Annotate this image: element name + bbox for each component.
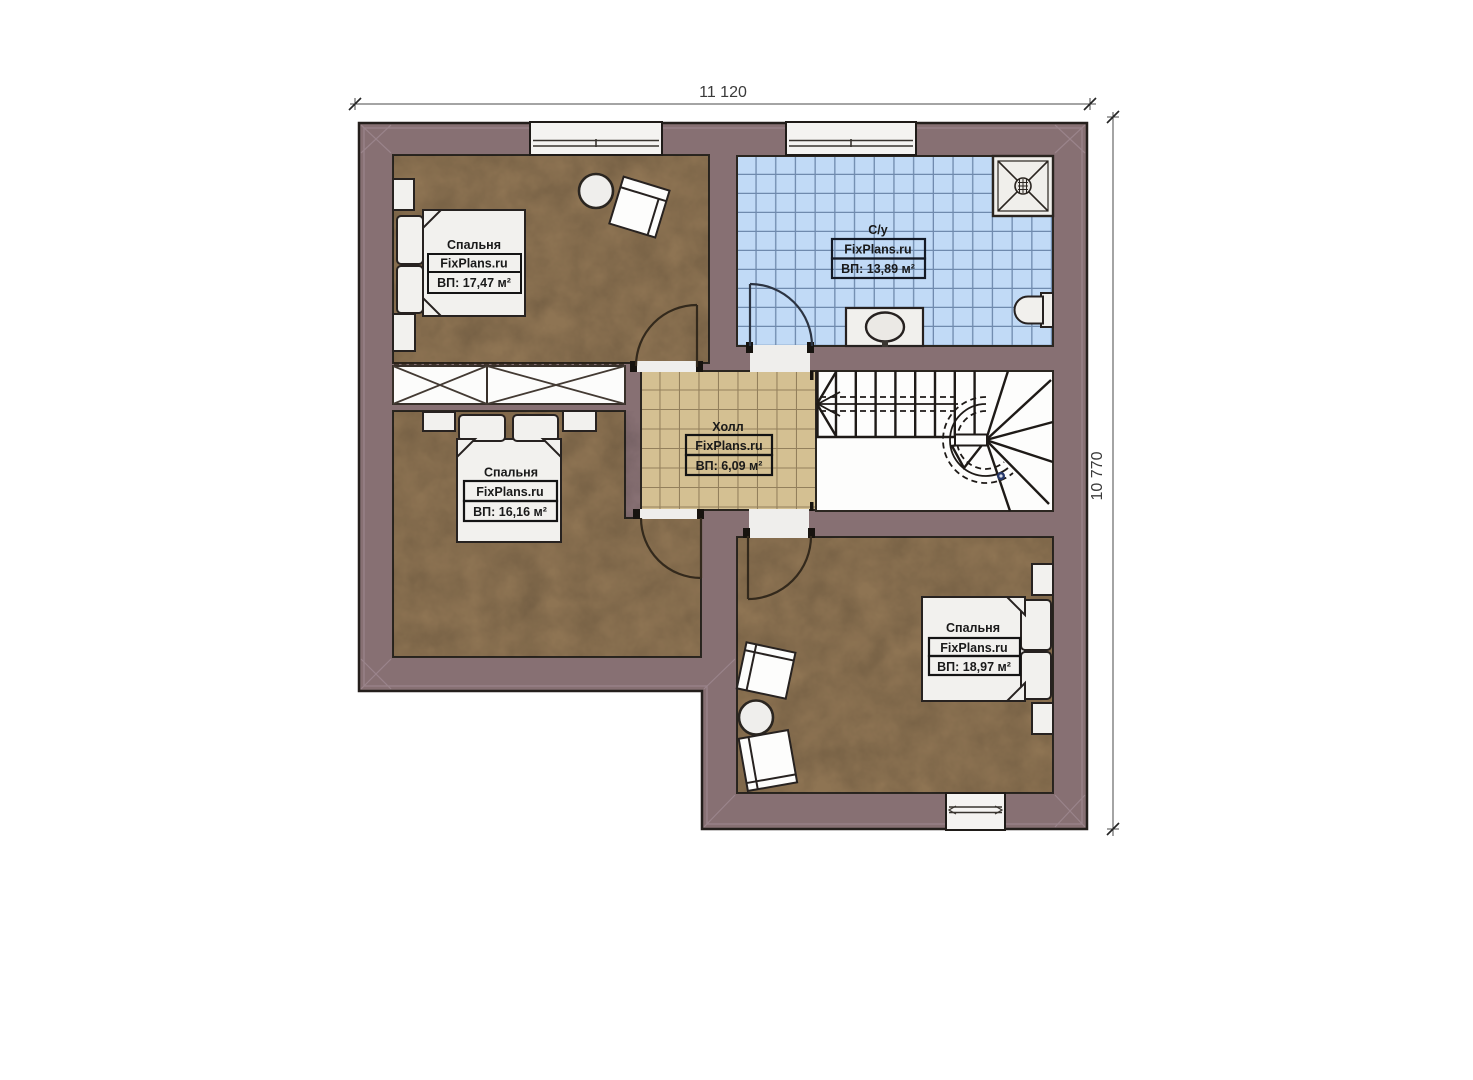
svg-text:ВП: 17,47 м²: ВП: 17,47 м² xyxy=(437,276,511,290)
svg-text:FixPlans.ru: FixPlans.ru xyxy=(476,485,543,499)
svg-text:Спальня: Спальня xyxy=(484,466,538,480)
svg-text:Спальня: Спальня xyxy=(946,621,1000,635)
svg-text:FixPlans.ru: FixPlans.ru xyxy=(695,439,762,453)
svg-text:ВП: 13,89 м²: ВП: 13,89 м² xyxy=(841,262,915,276)
svg-text:FixPlans.ru: FixPlans.ru xyxy=(940,641,1007,655)
svg-text:FixPlans.ru: FixPlans.ru xyxy=(844,243,911,257)
svg-text:ВП: 6,09 м²: ВП: 6,09 м² xyxy=(696,459,763,473)
svg-text:Холл: Холл xyxy=(712,420,743,434)
svg-text:С/у: С/у xyxy=(868,223,888,237)
svg-text:ВП: 16,16 м²: ВП: 16,16 м² xyxy=(473,505,547,519)
svg-text:11 120: 11 120 xyxy=(699,84,747,101)
svg-text:Спальня: Спальня xyxy=(447,238,501,252)
svg-text:10 770: 10 770 xyxy=(1089,451,1106,500)
svg-text:ВП: 18,97 м²: ВП: 18,97 м² xyxy=(937,660,1011,674)
svg-text:FixPlans.ru: FixPlans.ru xyxy=(440,257,507,271)
